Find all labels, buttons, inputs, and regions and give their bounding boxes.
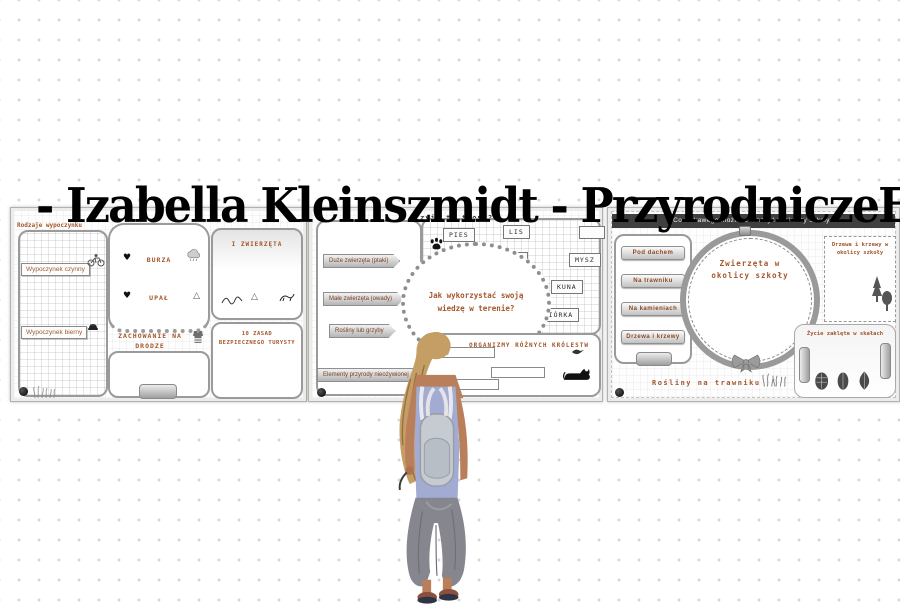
warning-triangle-icon: △ xyxy=(193,291,200,301)
hazard-label: BURZA xyxy=(136,255,182,265)
dangerous-animals-card: I ZWIERZĘTA △ xyxy=(211,228,303,320)
bottom-label: Rośliny na trawniku xyxy=(652,378,761,389)
squiggle-icon xyxy=(221,292,243,310)
rocks-label: Życie zaklęte w skałach xyxy=(799,330,891,339)
track-label-kuna: KUNA xyxy=(551,280,583,294)
scroll-handle xyxy=(880,343,891,379)
grass-icon xyxy=(760,370,790,393)
scroll-handle xyxy=(799,347,810,383)
scroll-banner xyxy=(139,384,177,399)
cap-icon xyxy=(87,320,99,338)
grass-icon xyxy=(31,383,59,404)
place-button: Na trawniku xyxy=(621,274,685,288)
observation-label: Małe zwierzęta (owady) xyxy=(323,292,404,306)
animal-sketch-icon xyxy=(279,290,295,308)
trees-label: Drzewa i krzewy w okolicy szkoły xyxy=(828,241,892,258)
slide-bullet xyxy=(317,388,326,397)
rocks-box: Życie zaklęte w skałach xyxy=(794,324,896,398)
hazard-label: UPAŁ xyxy=(136,293,182,303)
slide-bullet xyxy=(615,388,624,397)
tent-icon: △ xyxy=(251,292,258,302)
cat-silhouette-icon xyxy=(563,367,591,387)
animals-heading: I ZWIERZĘTA xyxy=(213,240,301,250)
road-heading: ZACHOWANIE NA DRODZE xyxy=(108,331,192,352)
scroll-banner xyxy=(636,352,672,366)
tourist-rules-card: 10 ZASAD BEZPIECZNEGO TURYSTY xyxy=(211,322,303,399)
tourist-rules-heading: 10 ZASAD BEZPIECZNEGO TURYSTY xyxy=(217,330,297,348)
rest-type-label: Wypoczynek czynny xyxy=(21,263,90,276)
place-button: Drzewa i krzewy xyxy=(621,330,685,344)
rest-type-label: Wypoczynek bierny xyxy=(21,326,87,339)
worksheet-slide-safety: Rodzaje wypoczynku Wypoczynek czynny Wyp… xyxy=(10,207,307,402)
slide-bullet xyxy=(19,387,28,396)
storm-cloud-icon xyxy=(186,249,202,267)
observation-label: Duże zwierzęta (ptaki) xyxy=(323,254,400,268)
hoop-label: Zwierzęta w okolicy szkoły xyxy=(705,258,795,282)
woman-with-backpack-photo xyxy=(387,330,485,613)
answer-slot xyxy=(491,367,545,378)
observation-label: Rośliny lub grzyby xyxy=(329,324,396,338)
safety-vest-icon xyxy=(192,330,204,349)
trees-box: Drzewa i krzewy w okolicy szkoły xyxy=(824,236,896,322)
cyclist-icon xyxy=(87,252,105,273)
place-button: Na kamieniach xyxy=(621,302,685,316)
bird-icon xyxy=(571,343,585,361)
worksheet-slide-school-area: Co ciekawego można zobaczyć w okolicy sz… xyxy=(607,207,900,402)
author-title: - Izabella Kleinszmidt - PrzyrodniczeEch… xyxy=(36,178,864,234)
specimen-icons xyxy=(811,369,875,396)
weather-hazards-card: ♥ BURZA ♥ UPAŁ △ xyxy=(108,223,210,333)
bow-icon xyxy=(730,354,762,378)
heart-icon: ♥ xyxy=(123,253,131,263)
tree-icons xyxy=(871,274,893,319)
heart-icon: ♥ xyxy=(123,291,131,301)
place-button: Pod dachem xyxy=(621,246,685,260)
track-label-mysz: MYSZ xyxy=(569,253,601,267)
